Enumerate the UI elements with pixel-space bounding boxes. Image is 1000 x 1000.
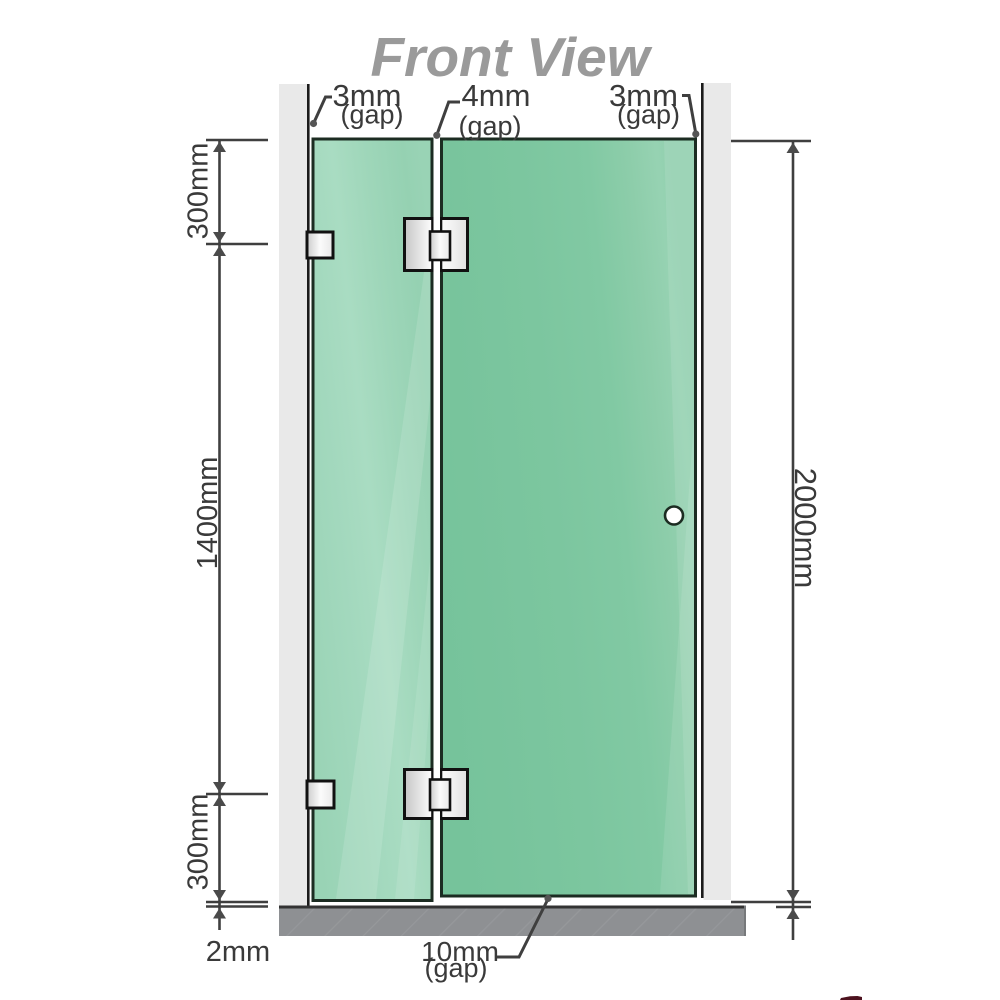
svg-text:300mm: 300mm bbox=[183, 794, 215, 891]
svg-text:300mm: 300mm bbox=[183, 143, 215, 240]
svg-text:(gap): (gap) bbox=[424, 953, 487, 983]
svg-text:1400mm: 1400mm bbox=[192, 457, 224, 570]
svg-text:4mm: 4mm bbox=[462, 78, 531, 113]
svg-text:(gap): (gap) bbox=[458, 111, 521, 141]
svg-text:2000mm: 2000mm bbox=[788, 468, 823, 589]
svg-text:2mm: 2mm bbox=[206, 936, 270, 968]
svg-text:(gap): (gap) bbox=[340, 100, 403, 130]
svg-text:(gap): (gap) bbox=[617, 100, 680, 130]
